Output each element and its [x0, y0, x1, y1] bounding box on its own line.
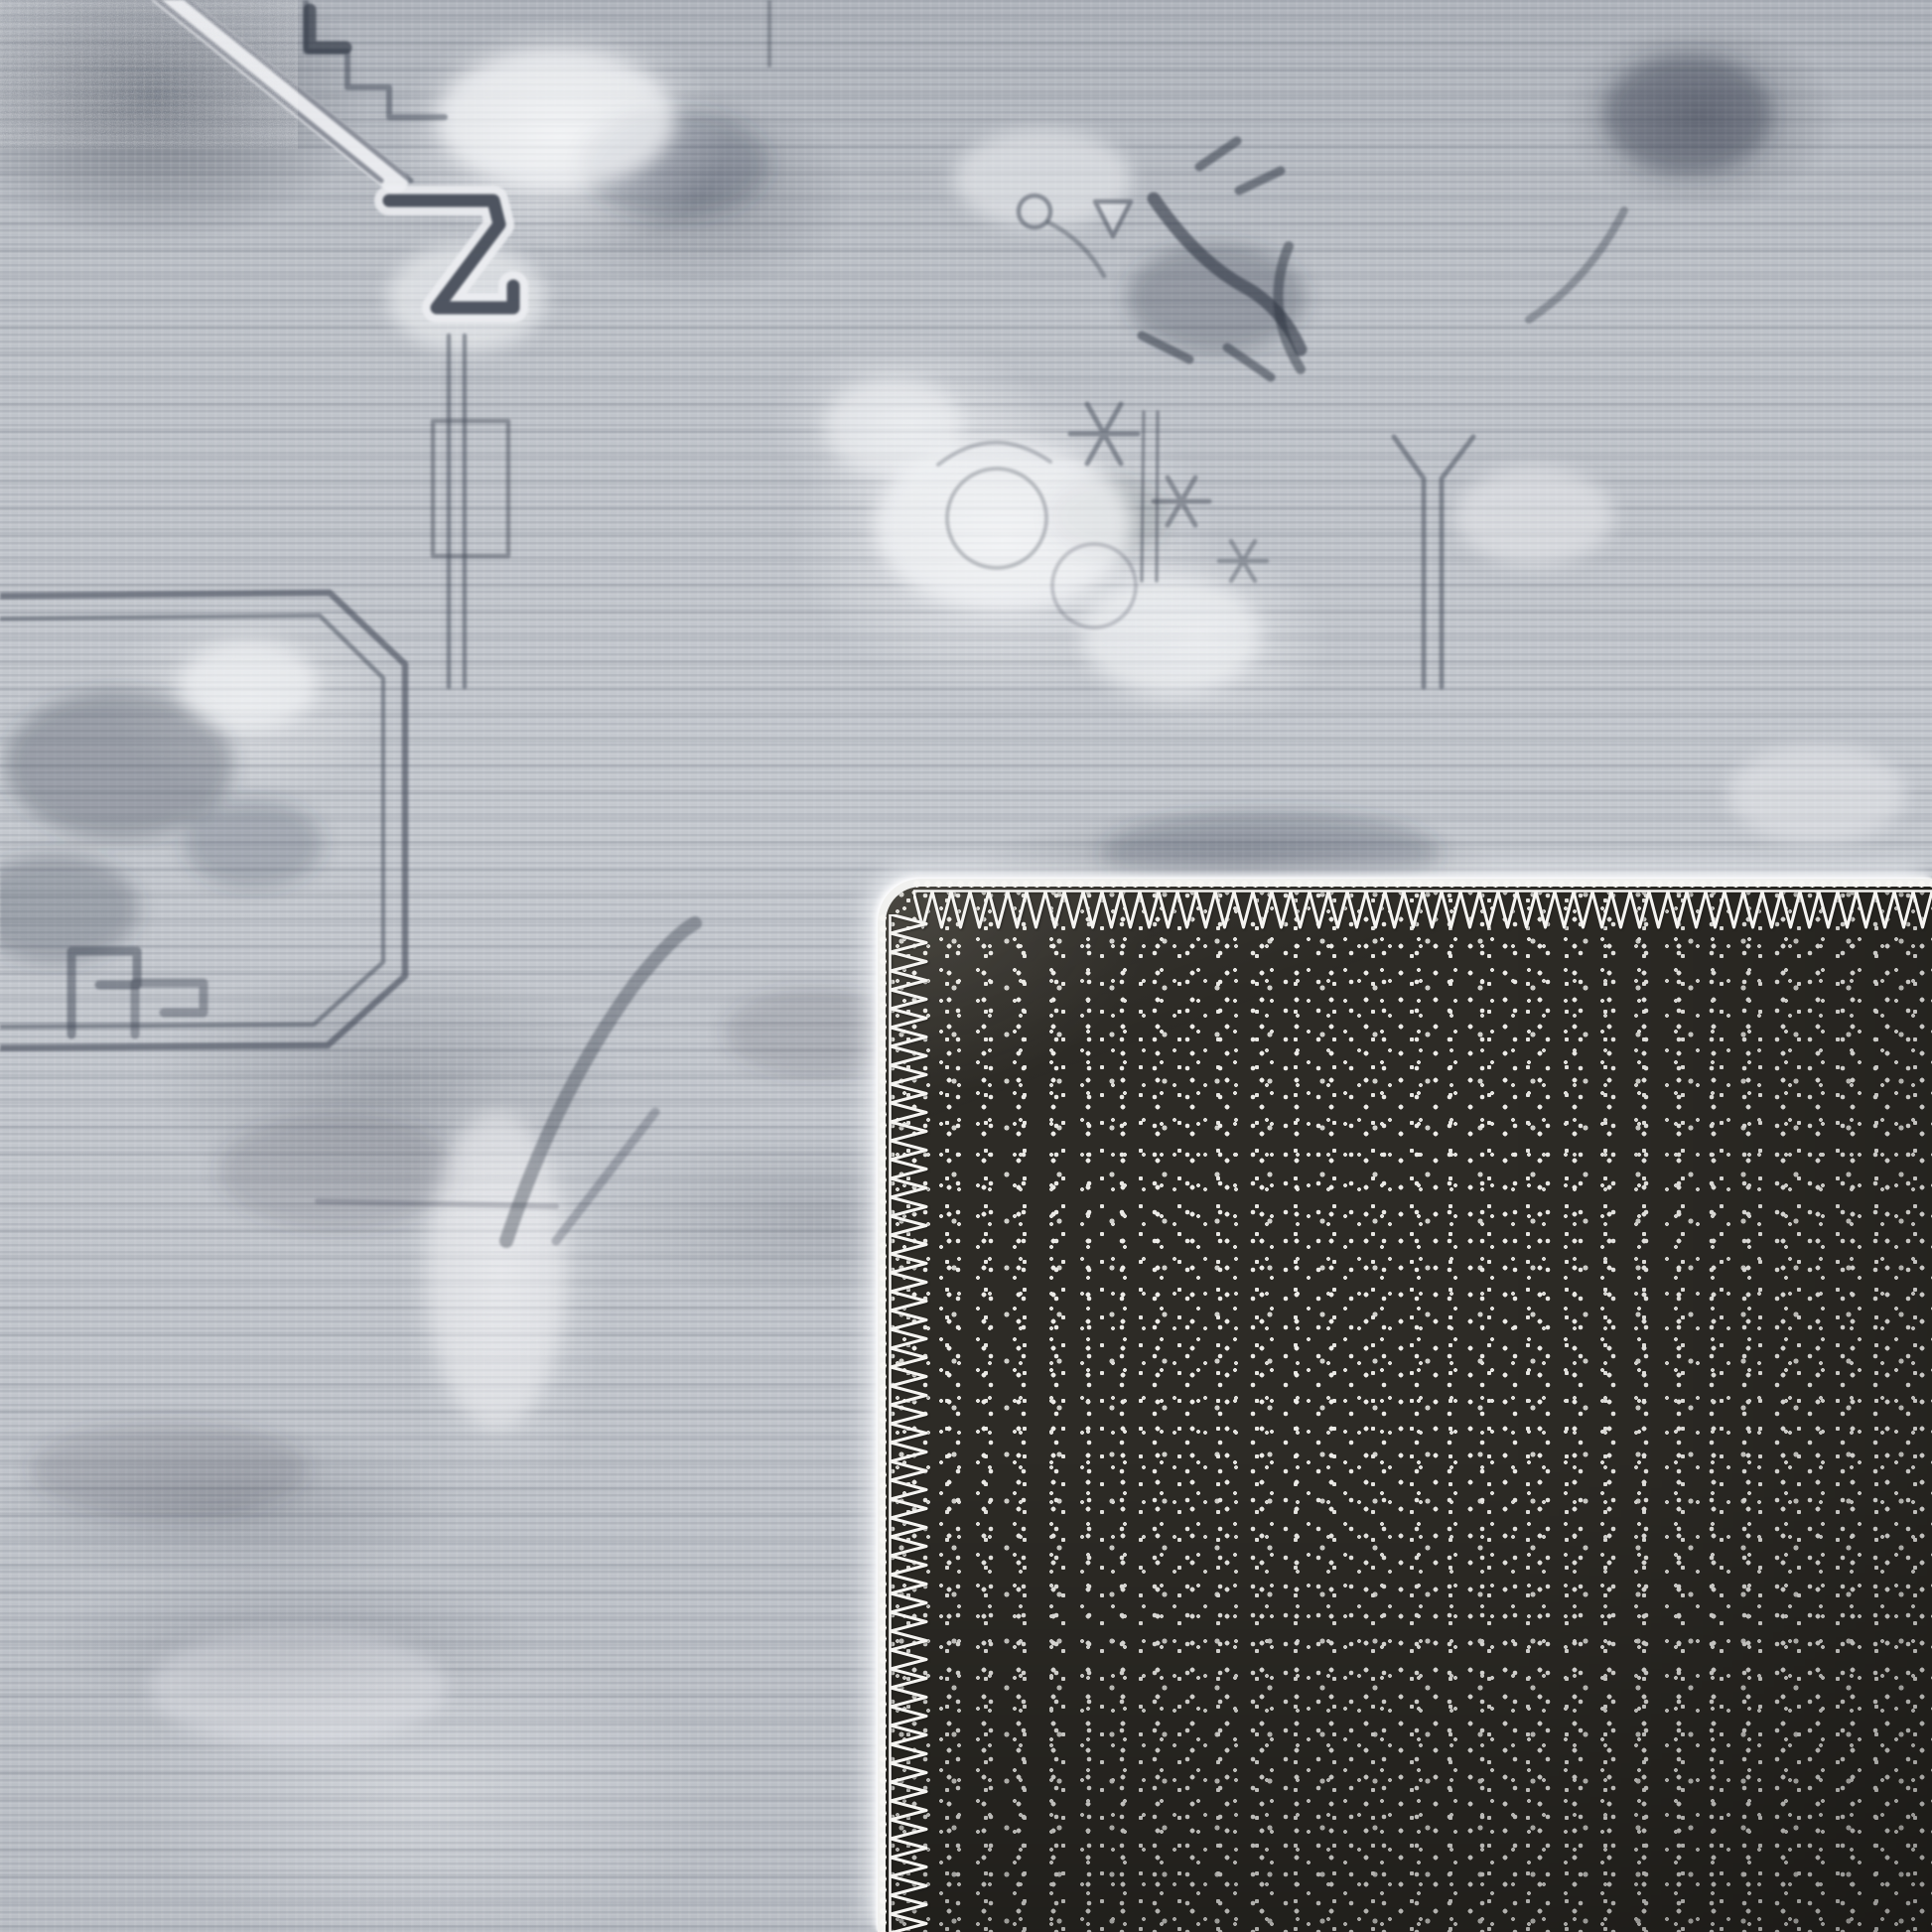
picot-edge-top [911, 879, 1932, 890]
rug-folded-corner [878, 879, 1932, 1932]
picot-edge-left [878, 912, 889, 1932]
anti-slip-backing [886, 887, 1932, 1932]
zigzag-stitch-top [913, 888, 1932, 933]
goblet-motif [1394, 437, 1473, 687]
zigzag-stitch-left [887, 914, 932, 1932]
backing-shading [886, 887, 1932, 1932]
staircase-motif [306, 2, 445, 117]
greek-key-motif [71, 951, 204, 1035]
rug-product-photo [0, 0, 1932, 1932]
